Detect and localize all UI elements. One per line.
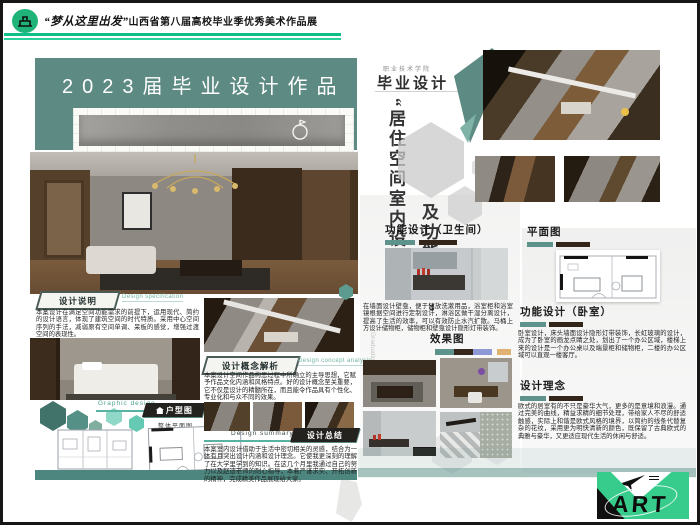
render-sofa (86, 246, 156, 274)
plan-section-heading: 平面图 (527, 224, 562, 239)
ink-brush-band (79, 115, 345, 146)
palette-swatch-brown (454, 349, 473, 355)
thumb-render-2 (253, 402, 302, 431)
render-vanity (413, 275, 465, 290)
render-flower (378, 434, 381, 440)
render-shower-glass (471, 248, 508, 300)
floorplan-sketch-left (55, 427, 135, 472)
floorplan-badge-label: 户型图 (156, 405, 193, 416)
bridge-icon (17, 14, 33, 28)
concept-section-heading: 设计理念 (520, 378, 566, 393)
birdseye-render (483, 50, 660, 140)
left-panel-title: 2023届毕业设计作品 (62, 70, 346, 99)
heading-bar-teal (520, 396, 546, 401)
render-flower (373, 435, 376, 440)
bedroom-floorplan (556, 250, 660, 302)
sketch-strip (73, 108, 354, 152)
living-room-render (30, 152, 358, 294)
art-logo: ART (597, 472, 689, 519)
render-table (180, 260, 242, 276)
render-flower (422, 268, 425, 275)
house-icon (156, 407, 164, 414)
summary-text: 本案室内设计借助于生活中密切相关的灵感，结合为一体有且突出设计内涵和设计理念。它… (204, 446, 357, 483)
heading-bar-dark (549, 322, 583, 327)
render-cabinets (363, 360, 436, 375)
render-beam (446, 418, 476, 426)
render-chair (468, 392, 482, 403)
palette-swatch-periwinkle (473, 349, 492, 355)
effect-render-1 (363, 360, 436, 407)
exhibition-logo (12, 9, 38, 33)
bedroom-text: 卧室设计，床头墙面设计隐形灯带装饰，长虹玻璃的设计，成为了卧室的画龙点睛之处，划… (518, 330, 686, 360)
render-purple-lamp (478, 368, 485, 375)
render-pillow (82, 362, 102, 370)
chandelier-icon (140, 154, 250, 200)
design-note-badge: 设计说明 (35, 291, 120, 310)
render-flower (427, 269, 430, 275)
render-bath-mirror (413, 252, 457, 269)
header-rule-bottom (4, 38, 341, 40)
exhibition-title-calligraphy: “梦从这里出发” (44, 16, 129, 28)
render-flower (417, 269, 420, 275)
render-small-2 (564, 156, 660, 202)
concept-badge-label: 设计概念解析 (222, 360, 279, 372)
bedroom-section-heading: 功能设计（卧室） (520, 304, 612, 319)
bedroom-render (30, 338, 200, 400)
render-wardrobe-right (172, 338, 200, 400)
bathroom-section-heading: 功能设计（卫生间） (385, 222, 489, 237)
faint-sketch-deco (336, 478, 362, 522)
concept-idea-text: 欧式的居室有的不只是豪华大气，更多的是意境和浪漫。通过完美的曲线，精益求精的细节… (518, 403, 686, 440)
poster-page: “梦从这里出发”山西省第八届高校毕业季优秀美术作品展 2023届毕业设计作品 (0, 0, 700, 525)
heading-bar-teal (520, 322, 546, 327)
render-bath-wall (385, 248, 411, 300)
render-balcony-rail (223, 300, 341, 334)
heading-bar-dark (419, 240, 457, 245)
design-note-en: Design specification (122, 294, 183, 302)
render-mirror (44, 180, 84, 258)
program-title: 毕业设计 (377, 72, 449, 93)
palette-swatch-tan (497, 349, 511, 355)
heading-bar-dark (556, 242, 590, 247)
logo-fine-print-bar (649, 479, 659, 480)
header-rule-top (4, 33, 341, 36)
heading-bar-teal (385, 240, 415, 245)
design-note-badge-label: 设计说明 (59, 295, 97, 307)
exhibition-title-text: 山西省第八届高校毕业季优秀美术作品展 (129, 17, 318, 28)
effect-section-heading: 效果图 (430, 331, 465, 346)
exhibition-title: “梦从这里出发”山西省第八届高校毕业季优秀美术作品展 (44, 13, 318, 29)
render-sofa-top (264, 332, 298, 342)
render-island (377, 386, 413, 398)
seal-icon (291, 118, 309, 142)
render-small-1 (475, 156, 555, 202)
concept-text: 本案设计空间作品构思过程中所确立的主导思想，它赋予作品文化内涵和风格特点。好的设… (204, 372, 356, 402)
render-pendant-light (621, 108, 629, 116)
summary-badge: 设计总结 (290, 428, 360, 442)
effect-render-2 (440, 358, 512, 408)
design-note-text: 本案设计在满足空间功能需求的前提下，运用现代、简约的设计语言，体现了建筑空间的时… (36, 309, 199, 339)
summary-en: Design summary (231, 430, 294, 437)
render-rail (508, 67, 636, 99)
logo-fine-print-bar (649, 476, 659, 477)
heading-bar-dark (549, 396, 583, 401)
thumb-render-3 (305, 402, 354, 431)
heading-bar-teal (527, 242, 553, 247)
thumb-render-1 (204, 402, 250, 431)
render-sofa-top (561, 102, 591, 114)
render-counter (369, 439, 409, 447)
bathroom-text: 在墙面设计壁龛，便于储放洗漱用品，浴室柜和浴室镜根据空间进行定制设计，淋浴区做干… (363, 303, 513, 333)
bathroom-render (385, 248, 508, 300)
bedroom-floorplan-drawing (556, 250, 660, 302)
summary-underline (204, 440, 290, 442)
summary-badge-label: 设计总结 (307, 430, 343, 441)
overview-render (204, 298, 354, 352)
floorplan-badge: 户型图 (142, 403, 206, 417)
render-wardrobe-left (30, 338, 60, 400)
render-window (488, 362, 508, 382)
palette-swatch-teal (435, 349, 454, 355)
logo-art-text: ART (611, 491, 669, 518)
